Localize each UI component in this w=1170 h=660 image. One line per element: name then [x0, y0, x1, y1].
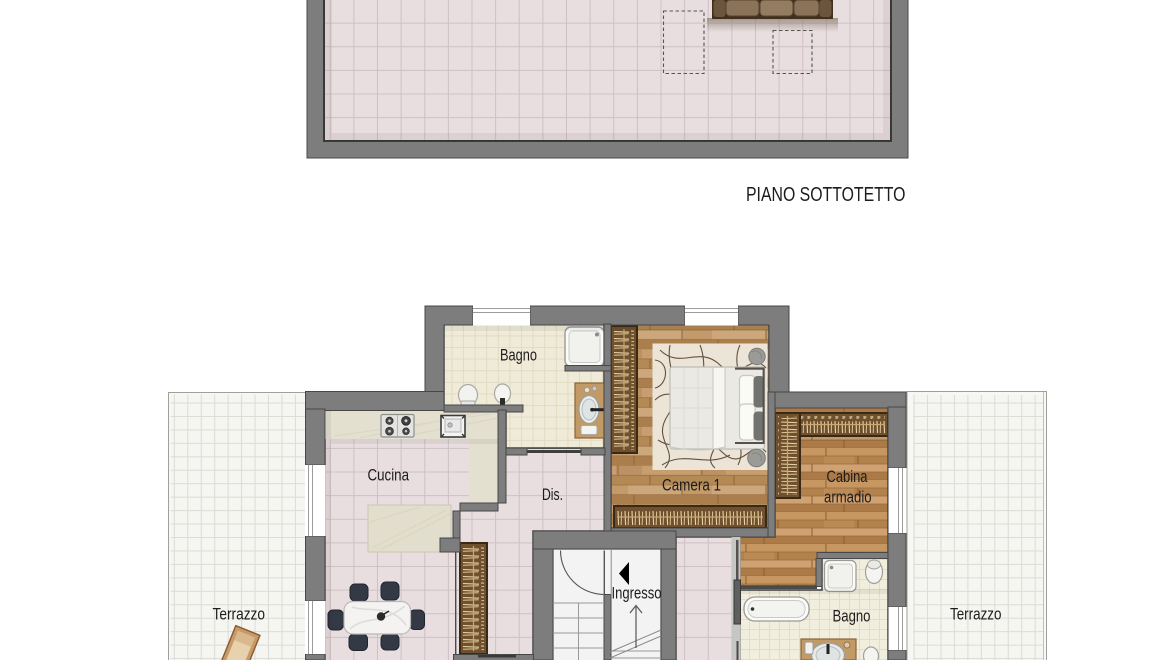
svg-text:Camera 1: Camera 1 [662, 477, 721, 495]
svg-text:Bagno: Bagno [500, 347, 537, 365]
svg-text:Terrazzo: Terrazzo [213, 606, 266, 624]
svg-text:Dis.: Dis. [542, 486, 563, 504]
svg-text:Bagno: Bagno [833, 608, 871, 626]
svg-text:PIANO SOTTOTETTO: PIANO SOTTOTETTO [746, 184, 906, 206]
svg-text:Cabina: Cabina [827, 468, 869, 486]
svg-text:Ingresso: Ingresso [612, 585, 662, 603]
svg-text:Cucina: Cucina [368, 466, 410, 484]
svg-text:armadio: armadio [824, 489, 872, 507]
svg-text:Terrazzo: Terrazzo [950, 606, 1002, 624]
